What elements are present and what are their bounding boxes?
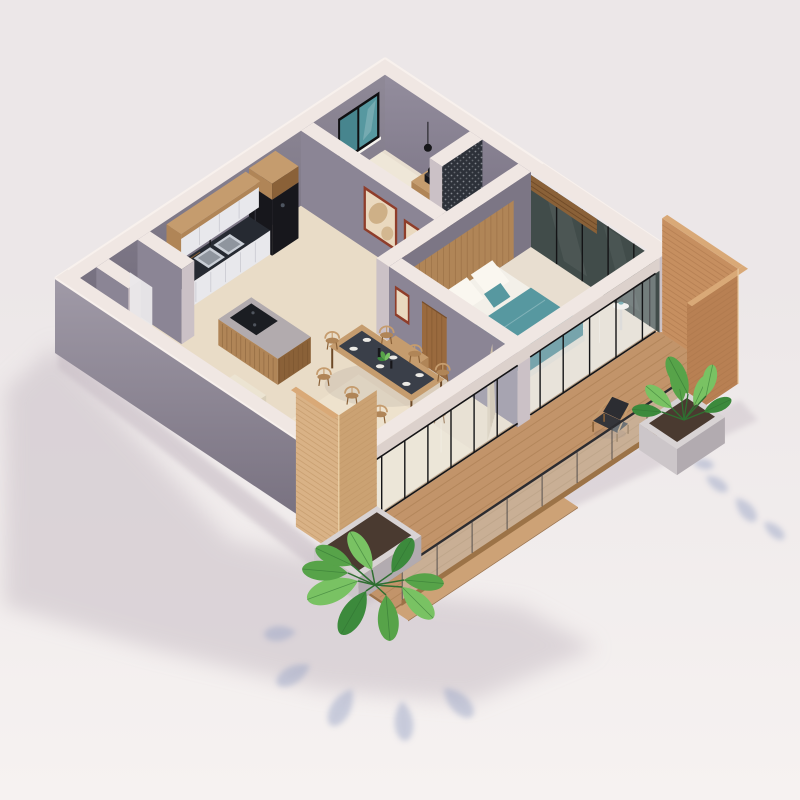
render-viewport: Isometric 3D floor plan render of a one-… [0, 0, 800, 800]
isometric-floorplan-render: Isometric 3D floor plan render of a one-… [0, 0, 800, 800]
